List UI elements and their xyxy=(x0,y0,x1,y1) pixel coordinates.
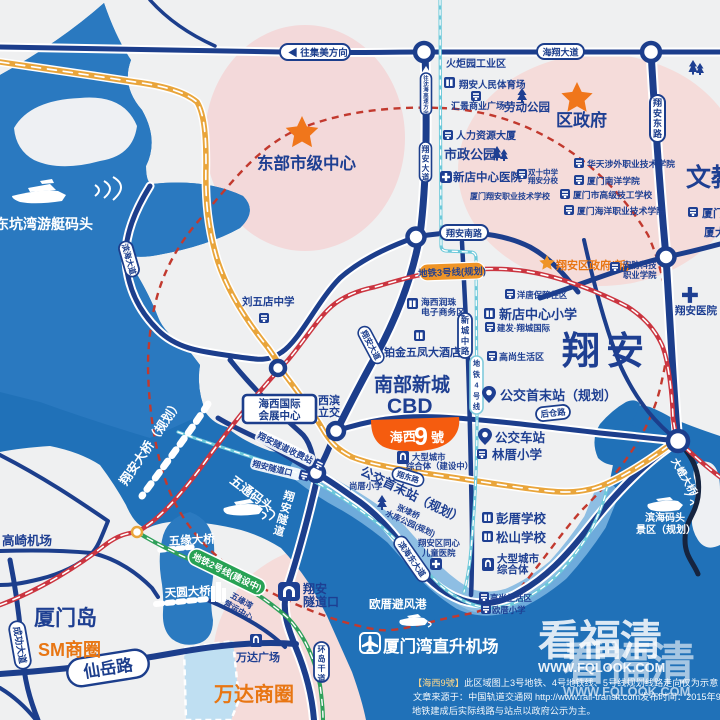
svg-text:新店中心小学: 新店中心小学 xyxy=(499,307,577,322)
svg-text:文教: 文教 xyxy=(686,163,720,192)
svg-text:厦门海洋职业技术学院: 厦门海洋职业技术学院 xyxy=(577,205,665,216)
svg-text:翔安东路: 翔安东路 xyxy=(652,97,663,139)
svg-text:南部新城: 南部新城 xyxy=(374,373,450,396)
svg-text:东坑湾游艇码头: 东坑湾游艇码头 xyxy=(0,216,93,232)
svg-text:海西: 海西 xyxy=(389,429,416,445)
svg-text:欧厝避风港: 欧厝避风港 xyxy=(369,597,427,611)
svg-text:翔安分校: 翔安分校 xyxy=(527,175,558,185)
svg-text:东部市级中心: 东部市级中心 xyxy=(257,153,357,173)
svg-text:翔安: 翔安 xyxy=(302,581,327,596)
svg-text:景区（规划）: 景区（规划） xyxy=(636,523,696,536)
svg-text:翔安人民体育场: 翔安人民体育场 xyxy=(458,79,526,91)
svg-text:万达商圈: 万达商圈 xyxy=(213,682,294,706)
svg-text:新店中心医院: 新店中心医院 xyxy=(453,170,522,184)
svg-text:翔安: 翔安 xyxy=(562,331,650,373)
svg-text:职业学院: 职业学院 xyxy=(623,270,657,280)
svg-text:厦门南洋学院: 厦门南洋学院 xyxy=(587,175,640,186)
svg-text:环岛干道: 环岛干道 xyxy=(318,645,326,683)
svg-text:市政公园: 市政公园 xyxy=(444,147,496,162)
svg-text:隧道口: 隧道口 xyxy=(303,594,339,609)
svg-text:高崎机场: 高崎机场 xyxy=(2,533,52,548)
svg-text:综合体: 综合体 xyxy=(497,563,529,576)
svg-text:安防科技: 安防科技 xyxy=(623,260,657,270)
svg-text:高尚生活区: 高尚生活区 xyxy=(499,351,544,362)
svg-text:建发·翔城国际: 建发·翔城国际 xyxy=(496,323,551,333)
svg-text:区政府: 区政府 xyxy=(556,110,607,130)
svg-text:【海西9號】此区域图上3号地铁、4号地铁线、5号线规划线路走: 【海西9號】此区域图上3号地铁、4号地铁线、5号线规划线路走向仅为示意（具体以市… xyxy=(413,677,720,688)
svg-text:儿童医院: 儿童医院 xyxy=(421,548,456,558)
svg-text:地铁建成后实际线路与站点以政府公示为主。: 地铁建成后实际线路与站点以政府公示为主。 xyxy=(412,705,596,716)
svg-text:厦门岛: 厦门岛 xyxy=(34,606,97,630)
svg-text:號: 號 xyxy=(431,430,444,445)
svg-text:欧厝小学: 欧厝小学 xyxy=(492,605,526,615)
svg-text:SM商圈: SM商圈 xyxy=(38,639,101,660)
svg-text:铂金五凤大酒店: 铂金五凤大酒店 xyxy=(384,345,461,359)
svg-text:海西国际: 海西国际 xyxy=(259,397,301,410)
svg-text:综合体（建设中）: 综合体（建设中） xyxy=(406,461,473,471)
svg-text:地铁3号线(规划): 地铁3号线(规划) xyxy=(418,265,486,278)
svg-text:厦门市高级技工学校: 厦门市高级技工学校 xyxy=(573,189,652,200)
svg-text:新城中路: 新城中路 xyxy=(461,315,470,356)
svg-text:翔安南路: 翔安南路 xyxy=(445,228,483,239)
svg-text:公交车站: 公交车站 xyxy=(495,430,546,445)
svg-text:公交首末站（规划）: 公交首末站（规划） xyxy=(500,388,617,403)
svg-text:西滨: 西滨 xyxy=(318,393,340,407)
svg-text:彭厝学校: 彭厝学校 xyxy=(496,511,547,526)
svg-text:翔安大道: 翔安大道 xyxy=(421,144,430,182)
svg-text:海翔大道: 海翔大道 xyxy=(542,47,578,58)
svg-text:◀ 往集美方向: ◀ 往集美方向 xyxy=(288,47,348,59)
svg-text:林厝小学: 林厝小学 xyxy=(492,447,543,462)
svg-text:9: 9 xyxy=(414,423,428,451)
svg-text:CBD: CBD xyxy=(387,395,433,418)
svg-text:厦大: 厦大 xyxy=(704,225,720,239)
svg-text:华天涉外职业技术学院: 华天涉外职业技术学院 xyxy=(587,158,675,169)
svg-text:汇景商业广场: 汇景商业广场 xyxy=(451,100,505,111)
svg-text:高尚生活区: 高尚生活区 xyxy=(490,593,532,603)
svg-text:火炬园工业区: 火炬园工业区 xyxy=(446,57,506,70)
svg-text:会展中心: 会展中心 xyxy=(259,409,301,422)
svg-text:文章来源于：中国轨道交通网 http://www.rail-: 文章来源于：中国轨道交通网 http://www.rail-transit.co… xyxy=(413,691,720,702)
svg-text:WWW.FQLOOK.COM: WWW.FQLOOK.COM xyxy=(538,660,665,675)
svg-text:翔安区同心: 翔安区同心 xyxy=(417,538,460,548)
svg-text:劳动公园: 劳动公园 xyxy=(504,100,550,114)
svg-text:厦门翔安职业技术学校: 厦门翔安职业技术学校 xyxy=(470,191,551,201)
svg-text:厦门: 厦门 xyxy=(702,206,720,220)
svg-text:滨海码头: 滨海码头 xyxy=(645,511,685,524)
svg-text:万达广场: 万达广场 xyxy=(235,650,280,664)
svg-text:立交: 立交 xyxy=(318,405,340,419)
svg-text:往沈海高速方向: 往沈海高速方向 xyxy=(423,74,429,117)
svg-text:人力资源大厦: 人力资源大厦 xyxy=(456,129,517,142)
svg-text:海西润珠: 海西润珠 xyxy=(421,296,456,307)
svg-text:翔安医院（新: 翔安医院（新 xyxy=(674,304,720,317)
svg-text:电子商务区: 电子商务区 xyxy=(421,306,465,317)
svg-text:洋唐保障住区: 洋唐保障住区 xyxy=(517,290,568,300)
svg-text:松山学校: 松山学校 xyxy=(496,530,547,545)
svg-text:厦门湾直升机场: 厦门湾直升机场 xyxy=(383,636,499,656)
svg-text:刘五店中学: 刘五店中学 xyxy=(242,295,295,308)
